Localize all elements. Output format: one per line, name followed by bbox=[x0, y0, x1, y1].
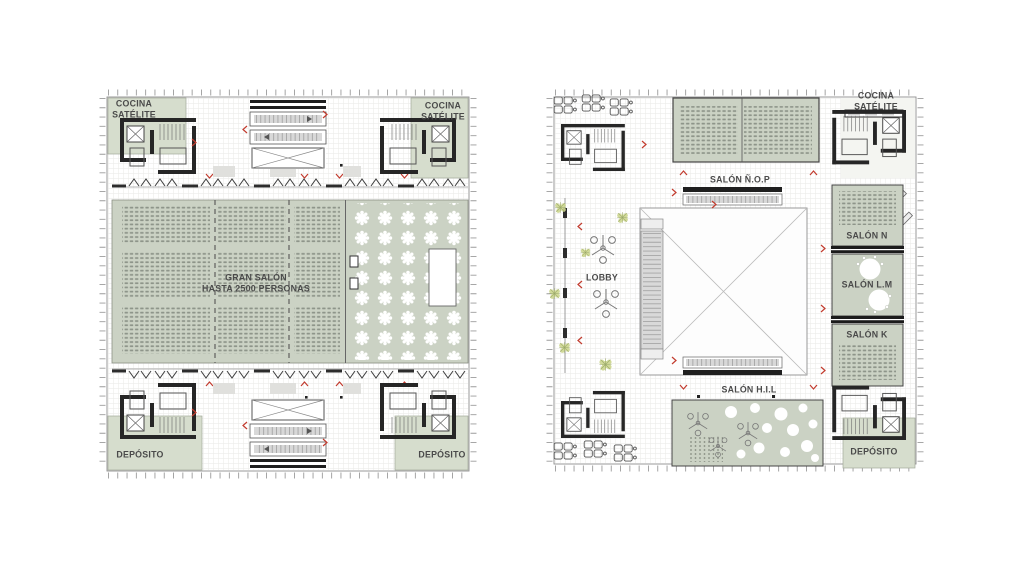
floor-plan-right: SALÓN Ñ.O.P COCINA SATÉLITE LOBBY SALÓN … bbox=[545, 88, 925, 473]
right-salon-column bbox=[831, 185, 904, 386]
left-plan-drawing bbox=[98, 88, 478, 480]
salon-hil-room bbox=[672, 395, 823, 466]
right-plan-drawing bbox=[545, 88, 925, 473]
gran-salon-hall bbox=[112, 200, 468, 363]
floor-plan-left: COCINA SATÉLITE COCINA SATÉLITE GRAN SAL… bbox=[98, 88, 478, 480]
page-canvas: COCINA SATÉLITE COCINA SATÉLITE GRAN SAL… bbox=[0, 0, 1024, 580]
stage bbox=[429, 249, 456, 306]
atrium-void bbox=[640, 187, 807, 375]
